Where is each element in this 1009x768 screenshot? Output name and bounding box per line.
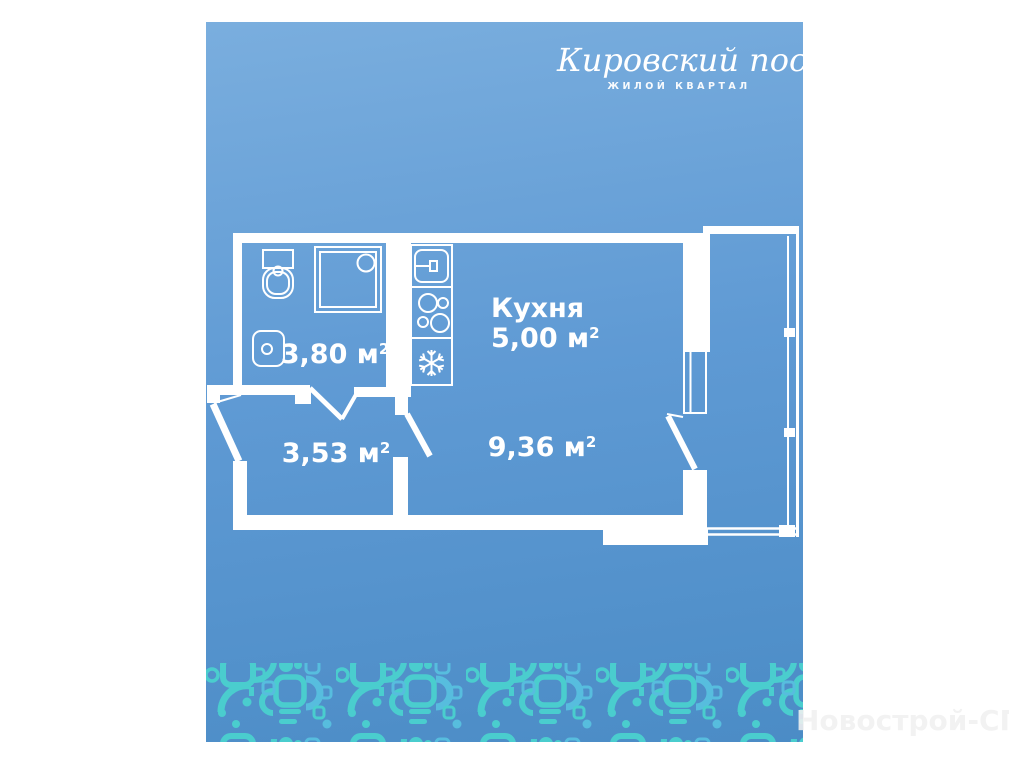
balcony-door-icon [667, 414, 695, 469]
page-root: Кировский посад ЖИЛОЙ КВАРТАЛ [0, 0, 1009, 768]
watermark: Новострой-СПб [796, 704, 1009, 737]
decor-pattern-band [206, 663, 803, 742]
living-room-door-icon [407, 414, 430, 456]
walls [207, 233, 710, 545]
shower-icon [315, 247, 381, 312]
kitchen-unit [411, 245, 452, 385]
stove-icon [418, 294, 449, 332]
kitchen-name-label: Кухня [491, 293, 584, 324]
kitchen-sink-icon [415, 250, 448, 282]
kitchen-area-label: 5,00 м2 [491, 323, 600, 354]
hallway-area-label: 3,53 м2 [282, 438, 391, 469]
living-room-area-label: 9,36 м2 [488, 432, 597, 463]
washbasin-icon [253, 331, 284, 366]
floorplan: 3,80 м2 Кухня 5,00 м2 9,36 м2 3,53 м2 [206, 22, 803, 742]
brochure-card: Кировский посад ЖИЛОЙ КВАРТАЛ [206, 22, 803, 742]
bathroom-area-label: 3,80 м2 [281, 339, 390, 370]
bathroom-door-icon [310, 388, 358, 419]
balcony-outline [703, 226, 799, 537]
toilet-icon [263, 250, 293, 298]
fridge-icon [418, 350, 445, 376]
entrance-door-icon [213, 395, 241, 461]
